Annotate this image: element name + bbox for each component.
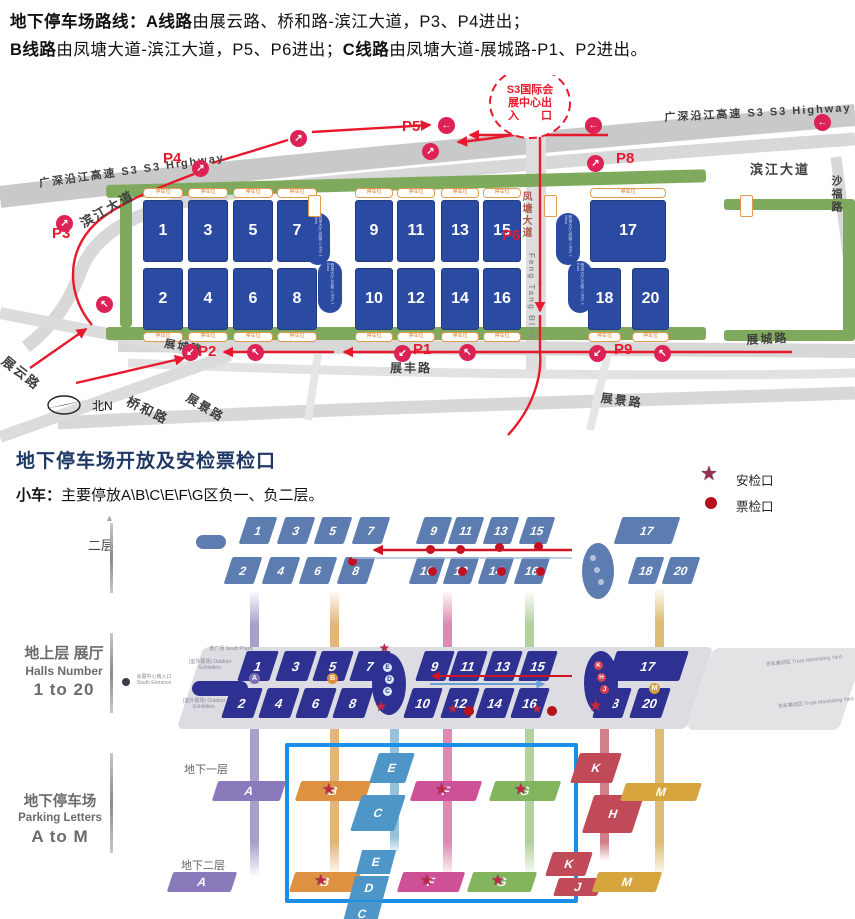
floor2-hall-20: 20 — [662, 557, 701, 584]
security-check-star: ★ — [447, 702, 459, 715]
road-label-binjiang-left: 滨江大道 — [76, 185, 137, 231]
micro-text-south-plaza: 南广场 South Plaza — [194, 647, 268, 653]
floor2-hall-14: 14 — [478, 557, 515, 584]
security-check-label: 安检口 — [736, 470, 774, 489]
ticket-check-dot — [464, 706, 474, 716]
floor2-hall-11: 11 — [448, 517, 485, 544]
capacity-pill-17: 停车位 — [590, 188, 666, 198]
road-label-zhanjing-left: 展景路 — [183, 389, 228, 425]
map-hall-6: 6 — [233, 268, 273, 330]
floor2-hall-3: 3 — [277, 517, 316, 544]
route-arrow-marker-2: ↗ — [290, 130, 307, 147]
parking-entrance-label-p8: P8 — [616, 150, 634, 167]
capacity-pill-16: 停车位 — [483, 332, 521, 342]
micro-text-outdoor: (室外展场) Outdoor Exhibition — [186, 660, 234, 672]
route-arrow-marker-15: ↖ — [654, 345, 671, 362]
map-hall-20: 20 — [632, 268, 669, 330]
section-title: 地下停车场开放及安检票检口 — [16, 446, 276, 473]
map-hall-4: 4 — [188, 268, 228, 330]
capacity-pill-14: 停车位 — [441, 332, 479, 342]
aisle-zone-dot-B: B — [327, 673, 338, 684]
route-text-line1: 地下停车场路线：A线路由展云路、桥和路-滨江大道，P3、P4进出； — [10, 8, 530, 32]
capacity-pill-13: 停车位 — [441, 188, 479, 198]
capacity-pill-5: 停车位 — [233, 188, 273, 198]
security-check-star: ★ — [375, 699, 388, 713]
security-check-icon: ★ — [700, 464, 718, 484]
security-check-star: ★ — [379, 642, 390, 654]
b2-star-B: ★ — [314, 873, 327, 888]
capacity-pill-20: 停车位 — [632, 332, 669, 342]
map-hall-1: 1 — [143, 200, 183, 262]
car-note-text: 主要停放A\B\C\E\F\G区负一、负二层。 — [61, 487, 324, 504]
floor2-hall-15: 15 — [519, 517, 556, 544]
floor2-hall-18: 18 — [628, 557, 665, 584]
micro-text-south-entrance: 会展中心南入口 South Entrance — [130, 675, 178, 687]
b2-star-G: ★ — [491, 873, 504, 888]
parking-guide-page: 地下停车场路线：A线路由展云路、桥和路-滨江大道，P3、P4进出； B线路由凤塘… — [0, 0, 855, 919]
route-arrow-marker-4: ← — [438, 117, 455, 134]
map-hall-3: 3 — [188, 200, 228, 262]
floor2-hall-5: 5 — [314, 517, 353, 544]
route-arrow-marker-14: ↙ — [589, 345, 606, 362]
floor2-hall-1: 1 — [239, 517, 278, 544]
b2-zone-K: K — [545, 852, 593, 876]
parking-entrance-label-p2: P2 — [198, 343, 216, 360]
diagram-layer: 1234567891011121314151617182012345678910… — [0, 505, 855, 919]
parking-sign-1 — [308, 195, 321, 217]
b2-star-F: ★ — [420, 873, 433, 888]
b2-strip-segment-C: C — [342, 902, 382, 919]
route-arrow-marker-10: ↙ — [182, 344, 199, 361]
capacity-pill-10: 停车位 — [355, 332, 393, 342]
road-label-shafu: 沙福路 — [828, 175, 844, 214]
route-text-segment: 由展云路、桥和路-滨江大道，P3、P4进出； — [192, 13, 529, 31]
lobby1-zone-dot-D: D — [385, 675, 394, 684]
parking-entrance-label-p4: P4 — [163, 150, 181, 167]
floor2-ticket-dot — [536, 567, 545, 576]
route-text-segment: 由凤塘大道-滨江大道，P5、P6进出； — [56, 41, 342, 59]
lobby2-zone-dot-J: J — [600, 685, 609, 694]
capacity-pill-9: 停车位 — [355, 188, 393, 198]
parking-entrance-label-p1: P1 — [413, 341, 431, 358]
map-hall-11: 11 — [397, 200, 435, 262]
floor2-hall-9: 9 — [416, 517, 453, 544]
b1-zone-K: K — [570, 753, 622, 783]
parking-entrance-label-p6: P6 — [502, 227, 520, 244]
parking-entrance-label-p5: P5 — [402, 118, 420, 135]
floor2-ticket-dot — [428, 567, 437, 576]
road-label-zhancheng-right: 展城路 — [746, 329, 789, 348]
map-hall-16: 16 — [483, 268, 521, 330]
floor2-hall-4: 4 — [262, 557, 301, 584]
route-text-segment: A线路 — [146, 13, 192, 31]
floor2-hall-13: 13 — [483, 517, 520, 544]
b1-star-F: ★ — [435, 782, 448, 797]
floor2-ticket-dot — [348, 557, 357, 566]
route-text-segment: 由凤塘大道-展城路-P1、P2进出。 — [389, 41, 647, 59]
route-arrow-marker-12: ↙ — [394, 345, 411, 362]
b2-strip-segment-E: E — [356, 850, 396, 874]
route-text-segment: 地下停车场路线： — [10, 13, 146, 31]
floor2-hall-2: 2 — [224, 557, 263, 584]
capacity-pill-15: 停车位 — [483, 188, 521, 198]
lobby-label: 登录大厅1东侧 Lobby 1 East — [326, 263, 335, 311]
b2-strip-segment-D: D — [349, 876, 389, 900]
road-label-binjiang-right: 滨江大道 — [750, 159, 810, 178]
floor2-hall-17: 17 — [614, 517, 681, 544]
site-map-overlay: 1停车位2停车位3停车位4停车位5停车位6停车位7停车位8停车位9停车位10停车… — [0, 75, 855, 450]
road-label-zhanyun: 展云路 — [0, 351, 45, 394]
road-label-qiaohe: 桥和路 — [124, 391, 173, 428]
aisle-zone-dot-M: M — [649, 683, 660, 694]
route-arrow-marker-7: ← — [814, 114, 831, 131]
car-note-label: 小车： — [16, 487, 61, 504]
floor2-ticket-dot — [458, 567, 467, 576]
site-map: S3国际会 展中心出 入 口 1停车位2停车位3停车位4停车位5停车位6停车位7… — [0, 75, 855, 450]
south-entrance-icon — [122, 678, 130, 686]
compass-icon: 北N — [44, 391, 118, 419]
map-hall-9: 9 — [355, 200, 393, 262]
lobby1-zone-dot-C: C — [383, 687, 392, 696]
lobby-1: 登录大厅1西侧 Lobby 1 West — [306, 213, 330, 265]
map-hall-13: 13 — [441, 200, 479, 262]
levels-diagram: 二层 ▲ 地上层 展厅 Halls Number 1 to 20 地下停车场 P… — [0, 505, 855, 919]
map-hall-5: 5 — [233, 200, 273, 262]
b2-zone-M: M — [592, 872, 662, 892]
route-arrow-marker-5: ↗ — [422, 143, 439, 160]
floor2-ticket-dot — [534, 542, 543, 551]
capacity-pill-3: 停车位 — [188, 188, 228, 198]
floor2-ticket-dot — [497, 567, 506, 576]
map-hall-18: 18 — [588, 268, 621, 330]
b1-zone-A: A — [212, 781, 286, 801]
map-hall-2: 2 — [143, 268, 183, 330]
ticket-check-dot — [547, 706, 557, 716]
ground-hall-17: 17 — [607, 651, 689, 681]
road-label-zhanjing-center: 展景路 — [600, 389, 644, 411]
security-check-star: ★ — [531, 702, 543, 715]
lobby2-zone-dot-K: K — [594, 661, 603, 670]
floor2-lobby-dot — [598, 579, 604, 585]
parking-entrance-label-p9: P9 — [614, 341, 632, 358]
b1-zone-M: M — [620, 783, 702, 801]
compass-label: 北N — [92, 399, 113, 413]
route-arrow-marker-9: ↖ — [96, 296, 113, 313]
floor2-lobby-dot — [594, 567, 600, 573]
floor2-ticket-dot — [426, 545, 435, 554]
lobby-label: 登录大厅2西侧 Lobby 2 West — [564, 215, 573, 263]
capacity-pill-6: 停车位 — [233, 332, 273, 342]
floor2-west-oval — [196, 535, 226, 549]
floor2-hall-10: 10 — [409, 557, 446, 584]
aisle-zone-dot-A: A — [249, 673, 260, 684]
capacity-pill-8: 停车位 — [277, 332, 317, 342]
floor2-ticket-dot — [495, 543, 504, 552]
route-arrow-marker-8: ↗ — [587, 155, 604, 172]
lobby1-zone-dot-E: E — [383, 663, 392, 672]
route-arrow-marker-13: ↖ — [459, 344, 476, 361]
b1-zone-E: E — [369, 753, 415, 783]
lobby-label: 登录大厅1西侧 Lobby 1 West — [314, 215, 323, 263]
lobby-4: 登录大厅2东侧 Lobby 2 East — [568, 261, 592, 313]
b1-star-B: ★ — [322, 782, 335, 797]
lobby-3: 登录大厅2西侧 Lobby 2 West — [556, 213, 580, 265]
parking-sign-2 — [544, 195, 557, 217]
map-hall-17: 17 — [590, 200, 666, 262]
b1-star-G: ★ — [514, 782, 527, 797]
route-text-segment: B线路 — [10, 41, 56, 59]
map-hall-10: 10 — [355, 268, 393, 330]
floor2-ticket-dot — [456, 545, 465, 554]
map-hall-8: 8 — [277, 268, 317, 330]
route-arrow-marker-3: ↗ — [56, 215, 73, 232]
map-hall-14: 14 — [441, 268, 479, 330]
road-label-zhanfeng: 展丰路 — [390, 359, 432, 376]
capacity-pill-1: 停车位 — [143, 188, 183, 198]
car-note: 小车：主要停放A\B\C\E\F\G区负一、负二层。 — [16, 484, 324, 505]
lobby2-zone-dot-H: H — [597, 673, 606, 682]
route-arrow-marker-1: ↗ — [192, 160, 209, 177]
route-text-segment: C线路 — [343, 41, 389, 59]
route-arrow-marker-6: ← — [585, 117, 602, 134]
route-arrow-marker-11: ↖ — [247, 344, 264, 361]
micro-text-outdoor: (室外展场) Outdoor Exhibition — [180, 699, 228, 711]
security-check-star: ★ — [588, 697, 603, 714]
lobby-label: 登录大厅2东侧 Lobby 2 East — [576, 263, 585, 311]
route-text-line2: B线路由凤塘大道-滨江大道，P5、P6进出；C线路由凤塘大道-展城路-P1、P2… — [10, 36, 648, 60]
floor2-hall-6: 6 — [299, 557, 338, 584]
floor2-hall-7: 7 — [352, 517, 391, 544]
lobby-2: 登录大厅1东侧 Lobby 1 East — [318, 261, 342, 313]
road-label-fengtang-en: Feng Tang Blvd — [527, 253, 536, 340]
floor2-lobby-dot — [590, 555, 596, 561]
b2-zone-A: A — [167, 872, 237, 892]
parking-sign-3 — [740, 195, 753, 217]
map-hall-12: 12 — [397, 268, 435, 330]
capacity-pill-11: 停车位 — [397, 188, 435, 198]
